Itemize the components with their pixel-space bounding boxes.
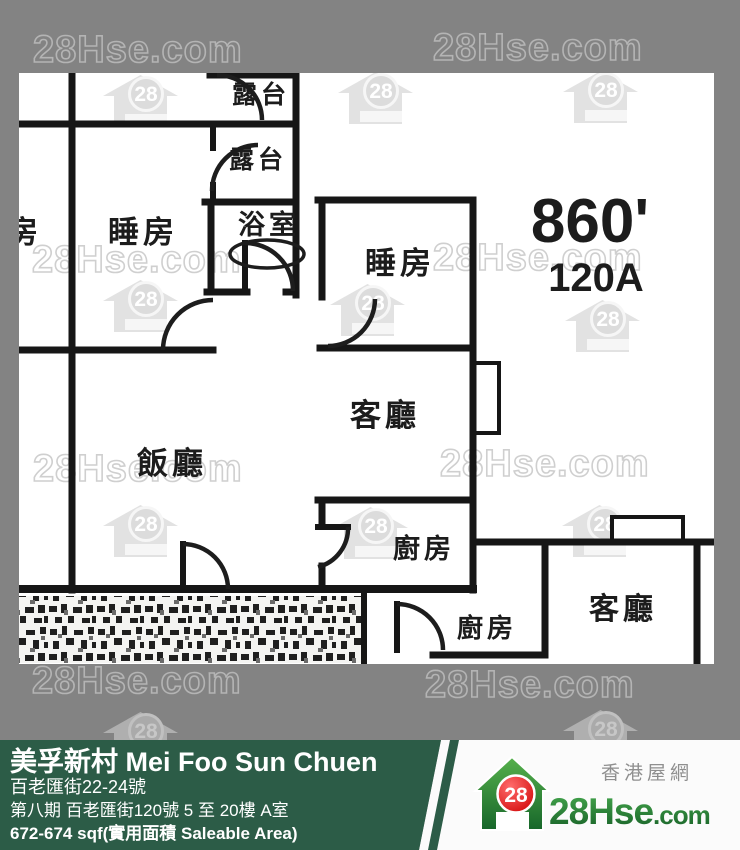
room-label-kitchen-lower: 廚房 xyxy=(457,613,517,643)
unit-number-label: 120A xyxy=(548,256,644,300)
watermark-text: 28Hse.com xyxy=(33,29,243,71)
window-box-lower-unit xyxy=(612,517,683,542)
room-label-living-room: 客廳 xyxy=(350,398,420,433)
room-label-kitchen: 廚房 xyxy=(393,533,455,564)
room-label-bedroom-left: 睡房 xyxy=(108,215,178,250)
window-box-living xyxy=(473,363,499,433)
footer: 美孚新村 Mei Foo Sun Chuen 百老匯街22-24號 第八期 百老… xyxy=(0,740,740,850)
estate-address: 百老匯街22-24號 xyxy=(10,777,146,797)
estate-phase-unit: 第八期 百老匯街120號 5 至 20樓 A室 xyxy=(10,801,289,820)
room-label-bedroom-right: 睡房 xyxy=(365,246,435,281)
room-label-living-room-lower: 客廳 xyxy=(589,592,657,626)
watermark-text: 28Hse.com xyxy=(433,27,643,69)
watermark-text: 28Hse.com xyxy=(425,664,635,706)
censored-noise-region xyxy=(19,596,364,663)
room-label-balcony-upper: 露台 xyxy=(232,80,290,109)
floorplan-page: 28 xyxy=(0,0,740,850)
room-label-balcony-lower: 露台 xyxy=(229,145,287,174)
estate-title: 美孚新村 Mei Foo Sun Chuen xyxy=(10,746,377,777)
room-label-dining-room: 飯廳 xyxy=(137,446,207,481)
estate-saleable-area: 672-674 sqf(實用面積 Saleable Area) xyxy=(10,823,298,843)
logo-tagline: 香港屋網 xyxy=(601,762,693,784)
logo-28-number: 28 xyxy=(504,784,528,807)
logo-house-door xyxy=(496,812,529,830)
area-size-label: 860' xyxy=(531,187,649,256)
watermark-text: 28Hse.com xyxy=(32,660,242,702)
room-label-bathroom: 浴室 xyxy=(238,209,300,240)
